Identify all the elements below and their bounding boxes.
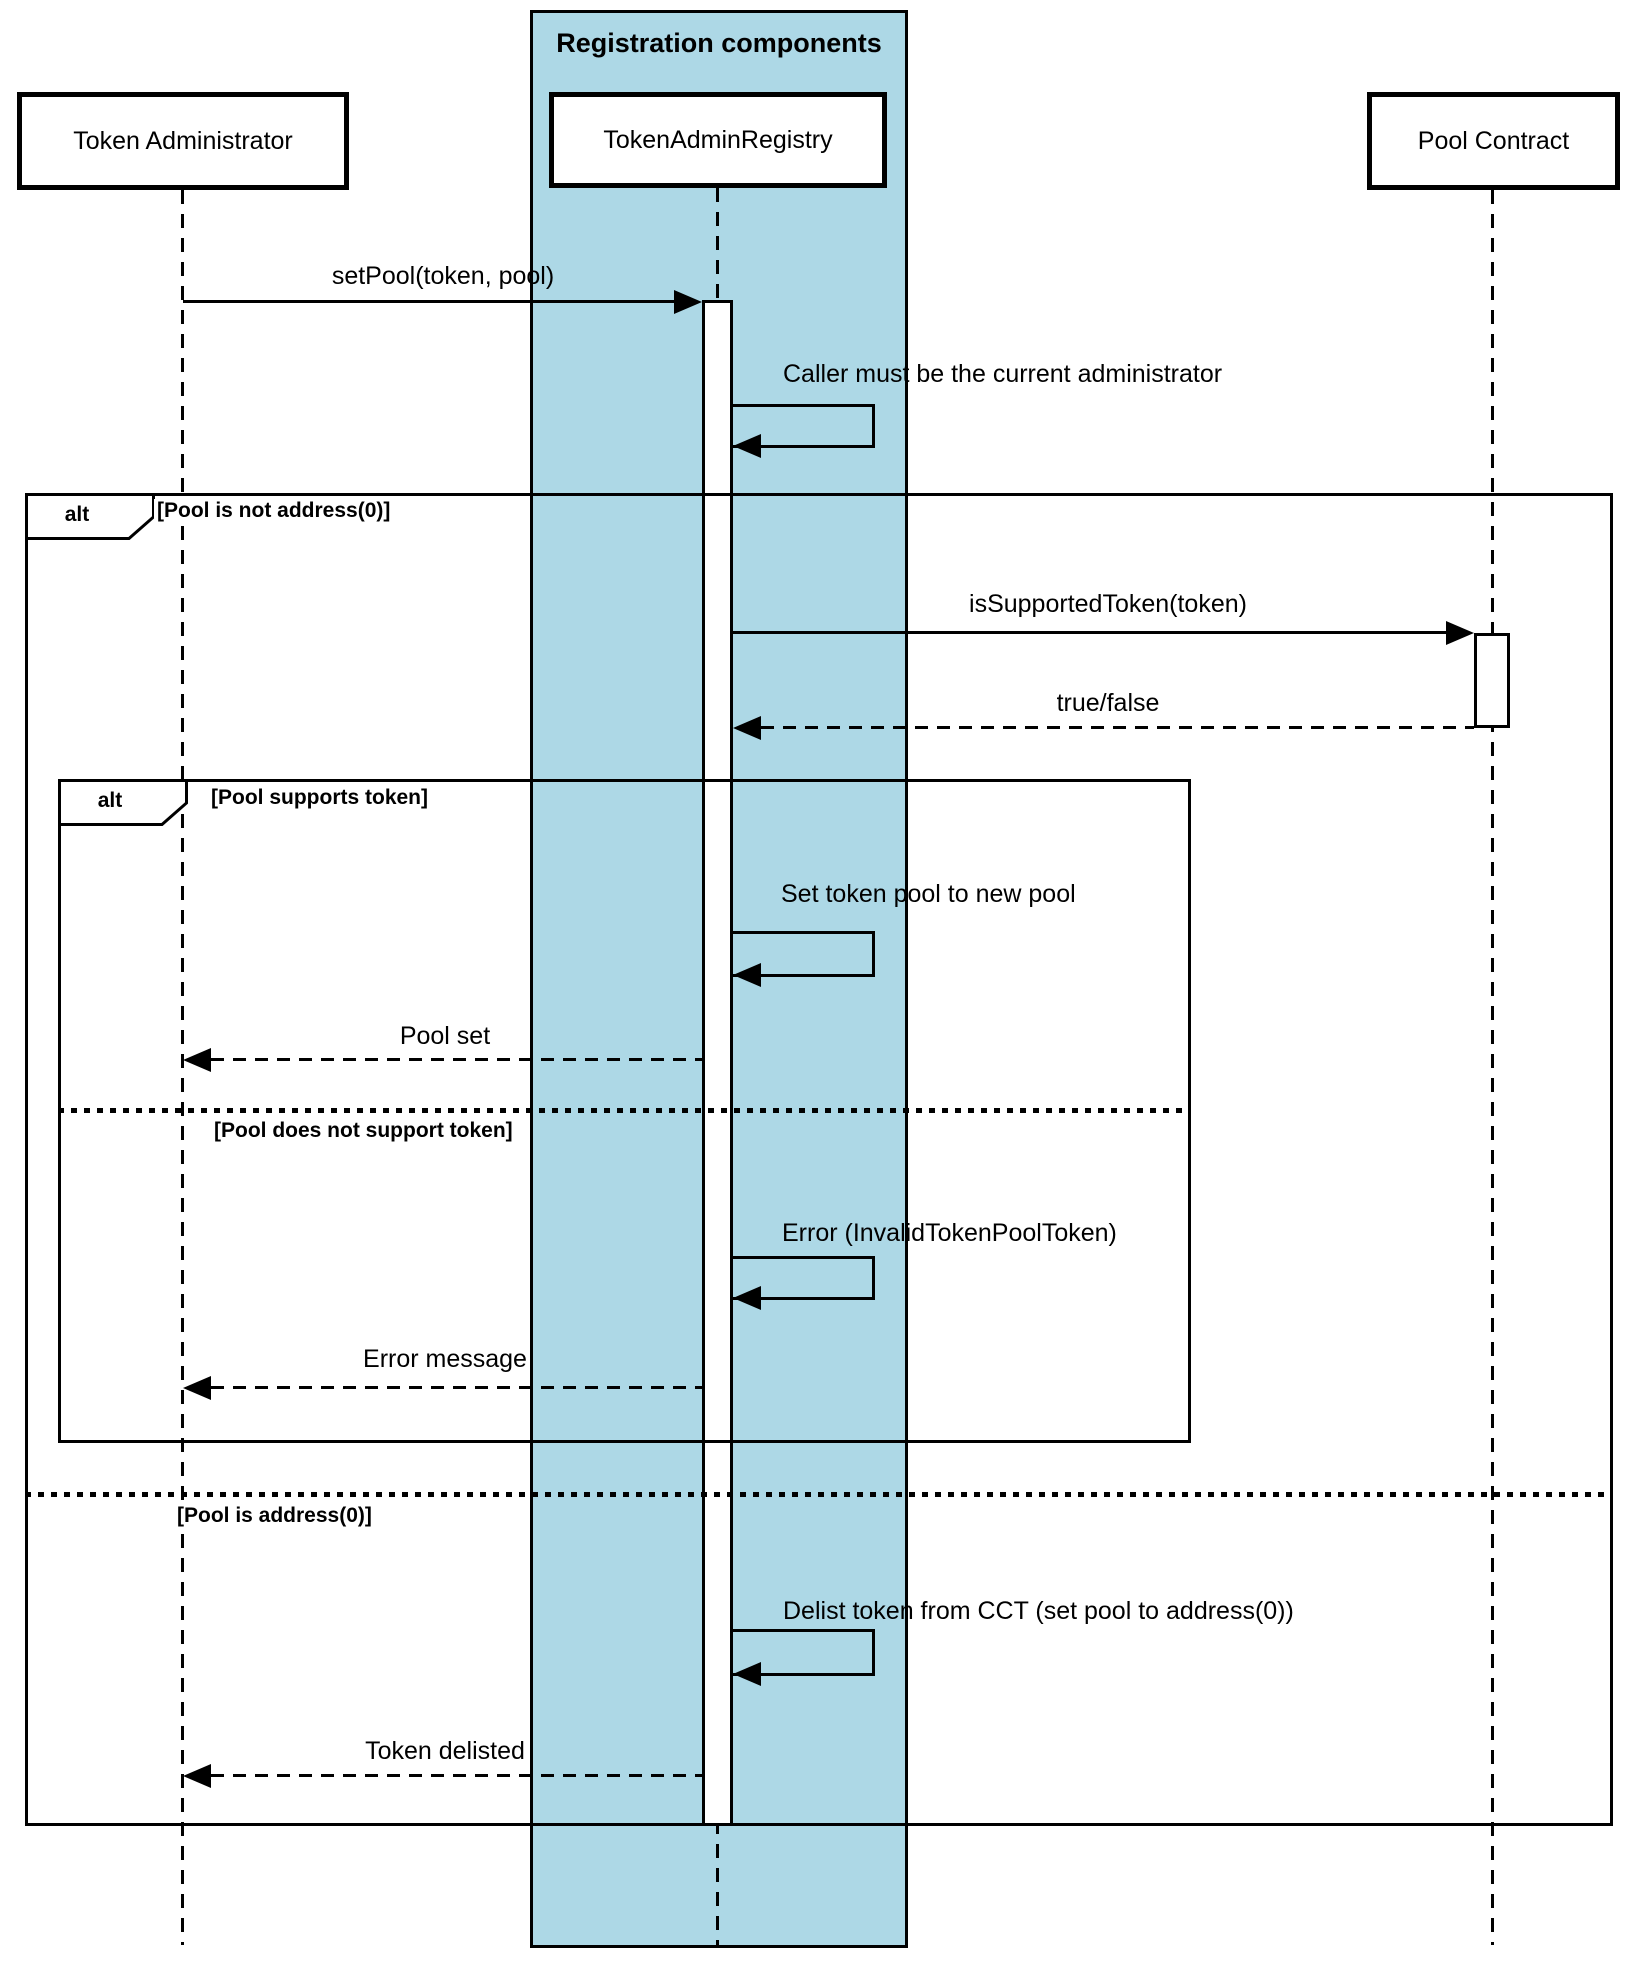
set-token-pool-arrowhead-icon — [733, 963, 761, 987]
error-invalid-token-arrowhead-icon — [733, 1286, 761, 1310]
is-supported-token-arrow-line — [733, 631, 1446, 634]
error-message-arrowhead-icon — [183, 1376, 211, 1400]
alt-outer-condition-else: [Pool is address(0)] — [174, 1504, 375, 1528]
set-token-pool-label: Set token pool to new pool — [781, 880, 1076, 909]
caller-check-arrowhead-icon — [733, 434, 761, 458]
alt-inner-divider — [58, 1108, 1191, 1113]
pool-set-label: Pool set — [400, 1022, 490, 1051]
token-delisted-arrowhead-icon — [183, 1764, 211, 1788]
alt-outer-divider — [25, 1492, 1613, 1497]
sequence-diagram: Registration components Token Administra… — [0, 0, 1630, 1962]
actor-token-admin-registry-label: TokenAdminRegistry — [603, 126, 832, 155]
actor-token-administrator: Token Administrator — [17, 92, 349, 190]
delist-token-arrowhead-icon — [733, 1662, 761, 1686]
setpool-arrowhead-icon — [674, 290, 702, 314]
delist-token-label: Delist token from CCT (set pool to addre… — [783, 1597, 1294, 1626]
setpool-arrow-line — [183, 300, 674, 303]
true-false-arrowhead-icon — [733, 716, 761, 740]
caller-check-label: Caller must be the current administrator — [783, 360, 1222, 389]
alt-outer-keyword: alt — [25, 503, 129, 527]
true-false-label: true/false — [1057, 689, 1160, 718]
error-invalid-token-label: Error (InvalidTokenPoolToken) — [782, 1219, 1117, 1248]
setpool-label: setPool(token, pool) — [332, 262, 554, 291]
frame-title: Registration components — [530, 28, 908, 59]
error-message-label: Error message — [363, 1345, 527, 1374]
actor-token-administrator-label: Token Administrator — [73, 127, 293, 156]
alt-outer-condition-true: [Pool is not address(0)] — [154, 499, 393, 523]
alt-inner-keyword: alt — [58, 789, 162, 813]
alt-inner-condition-true: [Pool supports token] — [208, 786, 431, 810]
actor-pool-contract-label: Pool Contract — [1418, 127, 1569, 156]
actor-token-admin-registry: TokenAdminRegistry — [549, 92, 887, 188]
alt-inner-condition-else: [Pool does not support token] — [211, 1119, 516, 1143]
pool-set-arrow-line — [211, 1058, 702, 1061]
token-delisted-arrow-line — [211, 1774, 702, 1777]
pool-set-arrowhead-icon — [183, 1048, 211, 1072]
error-message-arrow-line — [211, 1386, 702, 1389]
actor-pool-contract: Pool Contract — [1367, 92, 1620, 190]
true-false-arrow-line — [761, 726, 1474, 729]
is-supported-token-label: isSupportedToken(token) — [969, 590, 1247, 619]
token-delisted-label: Token delisted — [365, 1737, 525, 1766]
is-supported-token-arrowhead-icon — [1446, 621, 1474, 645]
